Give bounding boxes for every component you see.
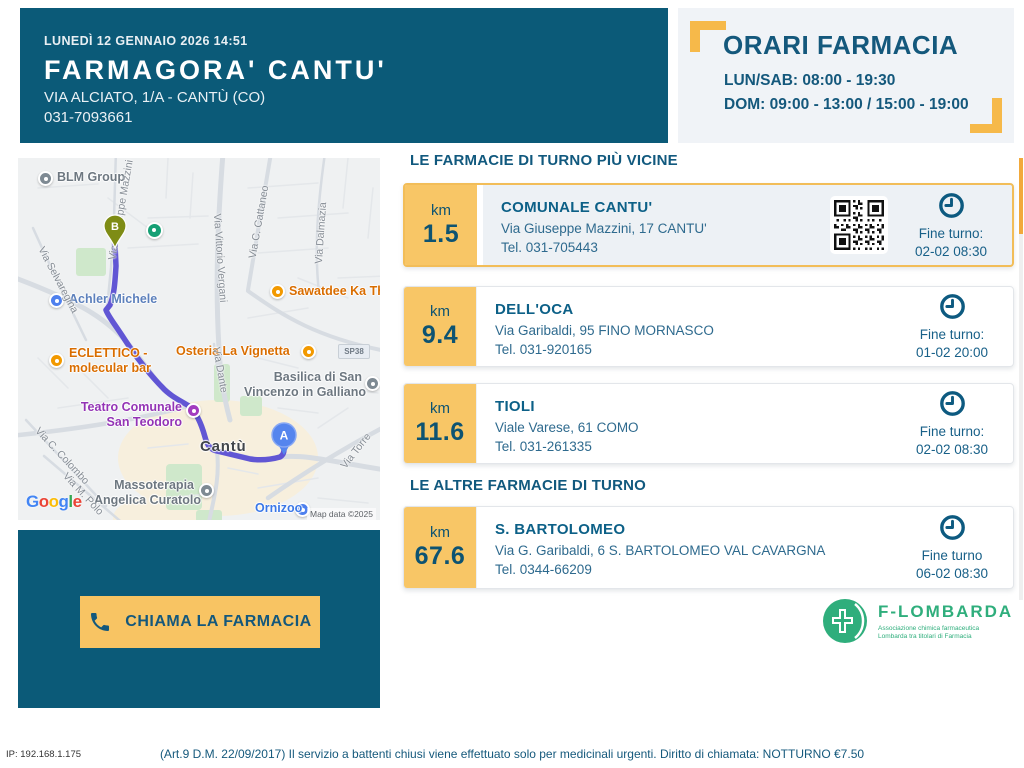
current-datetime: LUNEDÌ 12 GENNAIO 2026 14:51 — [44, 34, 668, 48]
google-logo: Google — [26, 492, 82, 512]
pharmacy-card-name: DELL'OCA — [495, 301, 897, 318]
svg-text:B: B — [111, 221, 119, 233]
hours-weekdays: LUN/SAB: 08:00 - 19:30 — [724, 72, 895, 90]
pharmacy-card-name: S. BARTOLOMEO — [495, 521, 897, 538]
pharmacy-card-phone: Tel. 031-705443 — [501, 240, 822, 255]
poi-icon[interactable] — [38, 171, 53, 186]
f-lombarda-tagline: Associazione chimica farmaceutica Lombar… — [878, 625, 1013, 641]
poi-label: Osteria La Vignetta — [176, 344, 290, 359]
call-pharmacy-label: CHIAMA LA FARMACIA — [125, 613, 311, 631]
call-pharmacy-button[interactable]: CHIAMA LA FARMACIA — [80, 596, 320, 648]
poi-label: Basilica di SanVincenzo in Galliano — [244, 370, 362, 400]
pharmacy-card-name: TIOLI — [495, 398, 897, 415]
city-label: Cantù — [200, 438, 247, 455]
f-lombarda-logo: F-LOMBARDA Associazione chimica farmaceu… — [822, 598, 1013, 644]
pharmacy-card-phone: Tel. 031-261335 — [495, 439, 897, 454]
pharmacy-card-address: Viale Varese, 61 COMO — [495, 420, 897, 435]
map-attribution: Map data ©2025 — [307, 508, 376, 520]
shift-end-value: 02-02 08:30 — [915, 244, 987, 259]
road-badge: SP38 — [338, 344, 370, 359]
distance-badge: km 11.6 — [404, 384, 476, 463]
pharmacy-card-name: COMUNALE CANTU' — [501, 199, 822, 216]
pharmacy-header: LUNEDÌ 12 GENNAIO 2026 14:51 FARMAGORA' … — [20, 8, 668, 143]
section-title-others: LE ALTRE FARMACIE DI TURNO — [410, 477, 646, 494]
pharmacy-address: VIA ALCIATO, 1/A - CANTÙ (CO) — [44, 89, 668, 106]
clock-icon — [939, 390, 966, 417]
qr-code — [830, 196, 888, 254]
pharmacy-card-phone: Tel. 031-920165 — [495, 342, 897, 357]
corner-bracket-icon — [690, 21, 726, 52]
poi-label: BLM Group — [57, 170, 125, 185]
pharmacy-card[interactable]: km 67.6 S. BARTOLOMEO Via G. Garibaldi, … — [403, 506, 1014, 589]
opening-hours-title: ORARI FARMACIA — [723, 30, 958, 61]
pharmacy-card-address: Via Garibaldi, 95 FINO MORNASCO — [495, 323, 897, 338]
pharmacy-card-address: Via Giuseppe Mazzini, 17 CANTU' — [501, 221, 822, 236]
poi-label: MassoterapiaAngelica Curatolo — [94, 478, 194, 508]
svg-text:A: A — [280, 429, 289, 443]
pharmacy-card[interactable]: km 11.6 TIOLI Viale Varese, 61 COMO Tel.… — [403, 383, 1014, 464]
poi-icon[interactable] — [365, 376, 380, 391]
poi-label: ECLETTICO -molecular bar — [69, 346, 151, 376]
shift-end-label: Fine turno: — [919, 226, 984, 241]
shift-end-label: Fine turno: — [920, 424, 985, 439]
scrollbar-track[interactable] — [1019, 158, 1023, 600]
corner-bracket-icon — [970, 98, 1002, 133]
poi-icon[interactable] — [186, 403, 201, 418]
poi-label: Sawatdee Ka Thai Fo — [289, 284, 380, 299]
pharmacy-card[interactable]: km 1.5 COMUNALE CANTU' Via Giuseppe Mazz… — [403, 183, 1014, 267]
clock-icon — [939, 514, 966, 541]
opening-hours-panel: ORARI FARMACIA LUN/SAB: 08:00 - 19:30 DO… — [678, 8, 1014, 143]
marker-b-pin[interactable]: B — [103, 214, 127, 250]
f-lombarda-name: F-LOMBARDA — [878, 602, 1013, 622]
poi-icon[interactable] — [49, 353, 64, 368]
pharmacy-phone: 031-7093661 — [44, 109, 668, 126]
phone-icon — [88, 610, 112, 634]
poi-label: Ornizoo — [255, 501, 302, 516]
pharmacy-card-address: Via G. Garibaldi, 6 S. BARTOLOMEO VAL CA… — [495, 543, 897, 558]
section-title-nearest: LE FARMACIE DI TURNO PIÙ VICINE — [410, 152, 678, 169]
poi-label: Teatro ComunaleSan Teodoro — [80, 400, 182, 430]
poi-label: Achler Michele — [69, 292, 157, 307]
route-map[interactable]: BLM Group Achler Michele Sawatdee Ka Tha… — [18, 158, 380, 520]
shift-end-label: Fine turno: — [920, 327, 985, 342]
distance-badge: km 9.4 — [404, 287, 476, 366]
pharmacy-name: FARMAGORA' CANTU' — [44, 55, 668, 86]
poi-icon[interactable] — [270, 284, 285, 299]
pharmacy-card[interactable]: km 9.4 DELL'OCA Via Garibaldi, 95 FINO M… — [403, 286, 1014, 367]
marker-a-pin[interactable]: A — [271, 422, 297, 456]
poi-icon[interactable] — [301, 344, 316, 359]
distance-badge: km 1.5 — [405, 185, 483, 265]
clock-icon — [938, 192, 965, 219]
call-panel: CHIAMA LA FARMACIA — [18, 530, 380, 708]
scrollbar-thumb[interactable] — [1019, 158, 1023, 234]
shift-end-value: 01-02 20:00 — [916, 345, 988, 360]
legal-notice: (Art.9 D.M. 22/09/2017) Il servizio a ba… — [0, 747, 1024, 761]
poi-icon[interactable] — [199, 483, 214, 498]
pharmacy-card-phone: Tel. 0344-66209 — [495, 562, 897, 577]
shift-end-value: 06-02 08:30 — [916, 566, 988, 581]
hours-sunday: DOM: 09:00 - 13:00 / 15:00 - 19:00 — [724, 96, 969, 114]
clock-icon — [939, 293, 966, 320]
f-lombarda-logo-icon — [822, 598, 868, 644]
shift-end-value: 02-02 08:30 — [916, 442, 988, 457]
poi-icon[interactable] — [146, 222, 163, 239]
distance-badge: km 67.6 — [404, 507, 476, 588]
shift-end-label: Fine turno — [922, 548, 983, 563]
